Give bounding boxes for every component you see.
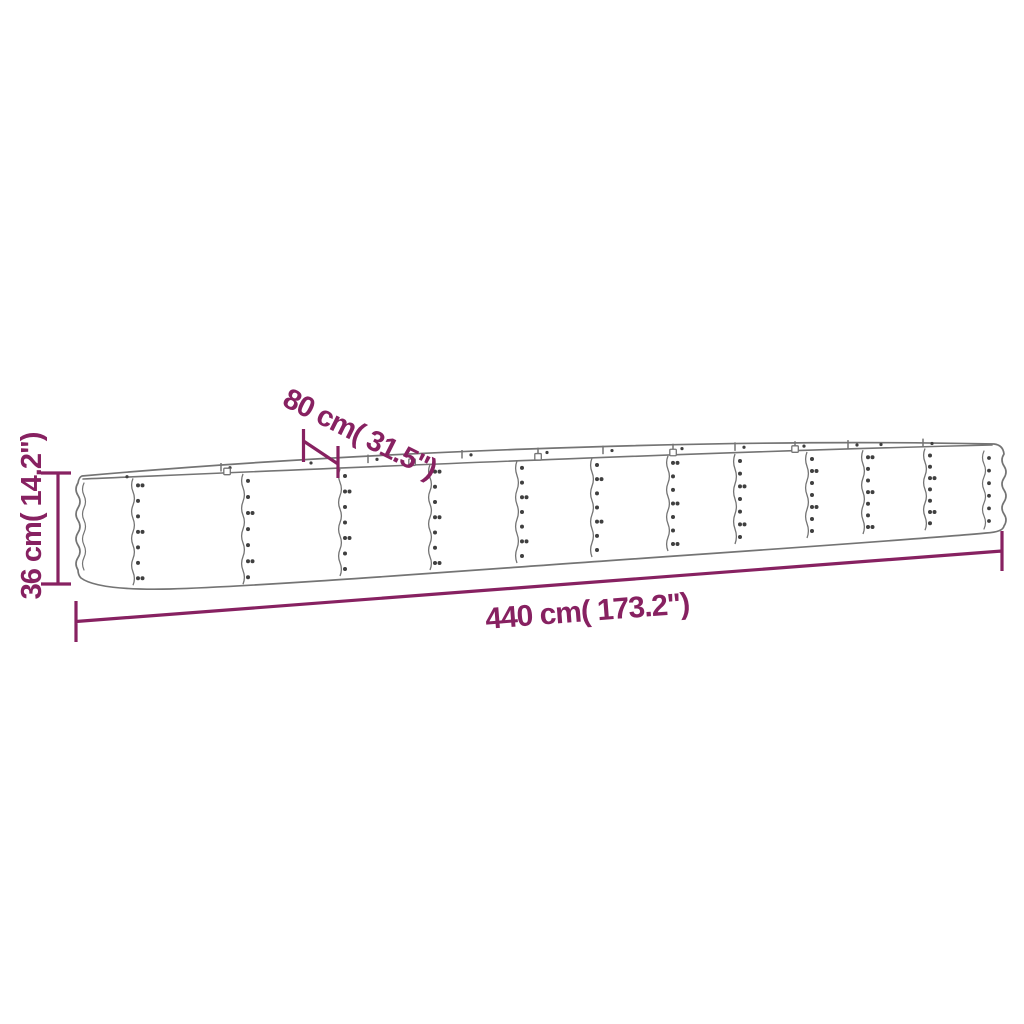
rivet-dot xyxy=(676,542,680,546)
rivet-dot xyxy=(600,520,604,524)
rivet-dot xyxy=(600,477,604,481)
rivet-dot xyxy=(810,517,814,521)
rim-rivet-dot xyxy=(930,442,933,445)
rim-rivet-dot xyxy=(610,449,613,452)
rivet-dot xyxy=(438,561,442,565)
rivet-dot xyxy=(348,490,352,494)
rim-rivet-dot xyxy=(309,461,312,464)
panel-seam xyxy=(806,452,809,538)
rivet-dot xyxy=(815,469,819,473)
rivet-dot xyxy=(525,495,529,499)
rim-joint-clip xyxy=(535,454,542,461)
rivet-dot xyxy=(595,491,599,495)
rim-rivet-dot xyxy=(469,453,472,456)
rivet-dot xyxy=(520,525,524,529)
panel-seam xyxy=(591,458,594,557)
rim-joint-clip xyxy=(224,468,231,475)
rivet-dot xyxy=(928,510,932,514)
rivet-dot xyxy=(928,453,932,457)
rivet-dot xyxy=(438,515,442,519)
rivet-dot xyxy=(866,502,870,506)
rivet-dot xyxy=(520,495,524,499)
rivet-dot xyxy=(810,469,814,473)
panel-seam xyxy=(339,469,342,576)
rivet-dot xyxy=(810,529,814,533)
dimension-diagram: 36 cm( 14.2") 80 cm( 31.5") 440 cm( 173.… xyxy=(0,0,1024,1024)
rivet-dot xyxy=(433,531,437,535)
rim-rivet-dot xyxy=(680,447,683,450)
rivet-dot xyxy=(743,522,747,526)
rivet-dot xyxy=(348,536,352,540)
rivet-dot xyxy=(738,522,742,526)
rivet-dot xyxy=(871,490,875,494)
rivet-dot xyxy=(928,521,932,525)
rivet-dot xyxy=(928,499,932,503)
rivet-dot xyxy=(525,539,529,543)
rivet-dot xyxy=(136,483,140,487)
length-dimension-label: 440 cm( 173.2") xyxy=(484,587,690,636)
left-cap-corrugation xyxy=(83,483,86,570)
rivet-dot xyxy=(738,484,742,488)
rivet-dot xyxy=(987,507,991,511)
height-dimension: 36 cm( 14.2") xyxy=(16,432,71,599)
rivet-dot xyxy=(815,505,819,509)
rivet-dot xyxy=(246,495,250,499)
rivet-dot xyxy=(671,542,675,546)
rivet-dot xyxy=(141,530,145,534)
rivet-dot xyxy=(595,506,599,510)
rivet-dot xyxy=(595,534,599,538)
rivet-dot xyxy=(671,474,675,478)
rim-rivet-dot xyxy=(545,451,548,454)
rivet-dot xyxy=(343,474,347,478)
rivet-dot xyxy=(810,481,814,485)
rivet-dot xyxy=(810,505,814,509)
rivet-dot xyxy=(738,472,742,476)
rivet-dot xyxy=(987,519,991,523)
rivet-dot xyxy=(866,455,870,459)
rivet-dot xyxy=(671,461,675,465)
rivet-dot xyxy=(928,487,932,491)
rivet-dot xyxy=(438,470,442,474)
rivet-dot xyxy=(671,488,675,492)
rivet-dot xyxy=(671,501,675,505)
rivet-dot xyxy=(738,459,742,463)
garden-bed-drawing xyxy=(76,439,1006,590)
rivet-dot xyxy=(866,478,870,482)
rivet-dot xyxy=(866,467,870,471)
rivet-dot xyxy=(520,554,524,558)
rivet-dot xyxy=(866,525,870,529)
rivet-dot xyxy=(251,511,255,515)
rivet-dot xyxy=(810,457,814,461)
rivet-dot xyxy=(871,525,875,529)
rivet-dot xyxy=(595,520,599,524)
rim-joint-clip xyxy=(792,446,799,453)
rim-rivet-dot xyxy=(879,443,882,446)
rivet-dot xyxy=(933,476,937,480)
rivet-dot xyxy=(987,456,991,460)
rivet-dot xyxy=(928,465,932,469)
rivet-dot xyxy=(520,481,524,485)
rivet-dot xyxy=(676,501,680,505)
rivet-dot xyxy=(433,485,437,489)
rivet-dot xyxy=(866,513,870,517)
rivet-dot xyxy=(433,515,437,519)
rivet-dot xyxy=(246,543,250,547)
rivet-dot xyxy=(671,528,675,532)
rivet-dot xyxy=(871,455,875,459)
rivet-dot xyxy=(866,490,870,494)
rivet-dot xyxy=(136,514,140,518)
rivet-dot xyxy=(928,476,932,480)
rivet-dot xyxy=(246,479,250,483)
rivet-dot xyxy=(246,527,250,531)
rim-rivet-dot xyxy=(125,475,128,478)
dimension-annotations: 36 cm( 14.2") 80 cm( 31.5") 440 cm( 173.… xyxy=(16,383,1002,642)
rivet-dot xyxy=(136,530,140,534)
rivet-dot xyxy=(987,494,991,498)
panel-seam xyxy=(734,454,737,544)
rivet-dot xyxy=(136,545,140,549)
rivet-dot xyxy=(141,483,145,487)
rivet-dot xyxy=(246,559,250,563)
rivet-dot xyxy=(343,552,347,556)
rivet-dot xyxy=(343,536,347,540)
rivet-dot xyxy=(676,461,680,465)
rivet-dot xyxy=(433,561,437,565)
rivet-dot xyxy=(141,576,145,580)
rivet-dot xyxy=(251,559,255,563)
rivet-dot xyxy=(933,510,937,514)
rim-rivet-dot xyxy=(855,443,858,446)
rivet-dot xyxy=(595,548,599,552)
rivet-dot xyxy=(343,521,347,525)
right-cap-corrugation xyxy=(983,451,986,529)
rivet-dot xyxy=(595,477,599,481)
rim-rivet-dot xyxy=(802,445,805,448)
rivet-dot xyxy=(738,510,742,514)
panel-seam xyxy=(862,450,865,534)
rivet-dot xyxy=(520,539,524,543)
rivet-dot xyxy=(520,510,524,514)
rivet-dot xyxy=(136,576,140,580)
rivet-dot xyxy=(738,535,742,539)
panel-seam xyxy=(242,474,245,584)
panel-seam xyxy=(132,478,135,585)
rivet-dot xyxy=(433,546,437,550)
rivet-dot xyxy=(987,469,991,473)
rivet-dot xyxy=(520,466,524,470)
rivet-dot xyxy=(810,493,814,497)
rivet-dot xyxy=(738,497,742,501)
panel-seam xyxy=(667,456,670,551)
rivet-dot xyxy=(671,515,675,519)
rim-joint-clip xyxy=(670,449,677,456)
rivet-dot xyxy=(743,484,747,488)
rivet-dot xyxy=(246,575,250,579)
panel-seam xyxy=(924,448,927,530)
rivet-dot xyxy=(136,561,140,565)
rivet-dot xyxy=(987,481,991,485)
rivet-dot xyxy=(136,499,140,503)
rivet-dot xyxy=(595,463,599,467)
rivet-dot xyxy=(246,511,250,515)
height-dimension-label: 36 cm( 14.2") xyxy=(16,432,48,599)
panel-seam xyxy=(516,461,519,563)
rivet-dot xyxy=(433,500,437,504)
rivet-dot xyxy=(343,505,347,509)
rivet-dot xyxy=(343,490,347,494)
rim-rivet-dot xyxy=(742,446,745,449)
rivet-dot xyxy=(343,567,347,571)
